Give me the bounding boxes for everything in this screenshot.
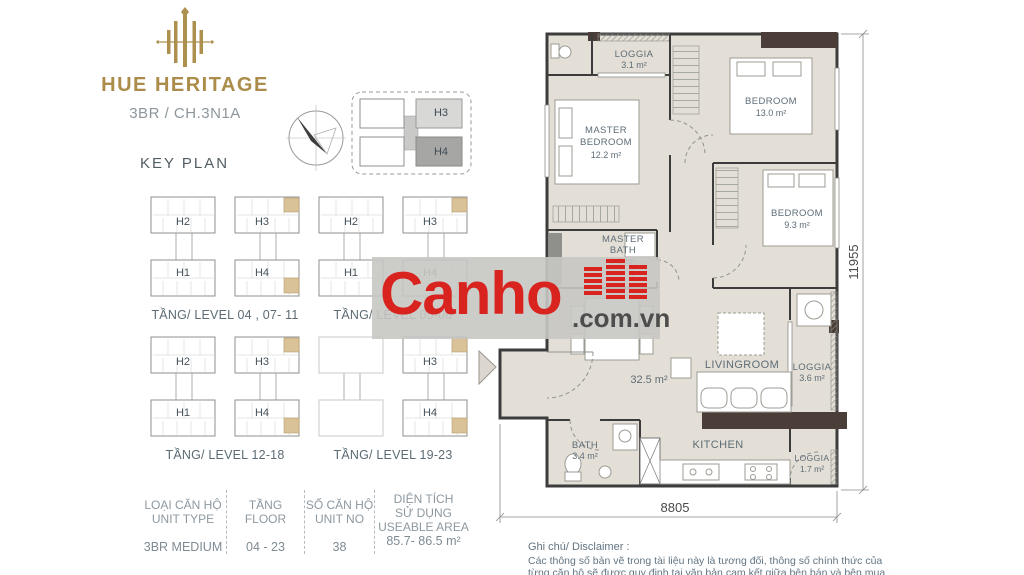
room-loggia-right-area: 3.6 m² <box>799 373 825 383</box>
unit-label: H3 <box>255 216 269 228</box>
room-bath-area: 3.4 m² <box>572 451 598 461</box>
central-area-label: 32.5 m² <box>630 374 668 386</box>
room-loggia-bottom: LOGGIA <box>795 453 830 463</box>
watermark: Canho .com.vn <box>372 257 660 339</box>
unit-label: H3 <box>423 356 437 368</box>
washer <box>797 294 831 326</box>
mini-keyplan: H3 H4 <box>350 90 474 178</box>
unit-label: H1 <box>344 267 358 279</box>
header-area-en: USEABLE AREA <box>378 520 469 534</box>
dim-width-label: 8805 <box>661 500 690 515</box>
header-area-vi1: DIỆN TÍCH <box>394 492 454 506</box>
unit-label: H4 <box>255 267 269 279</box>
room-master-bedroom-area: 12.2 m² <box>591 150 622 160</box>
room-kitchen: KITCHEN <box>692 439 743 451</box>
highlight-unit-h3 <box>284 338 299 352</box>
value-unit-type: 3BR MEDIUM <box>140 540 226 554</box>
unit-label: H2 <box>176 216 190 228</box>
highlight-unit-h3 <box>452 198 467 212</box>
room-bedroom-13-area: 13.0 m² <box>756 108 787 118</box>
value-floor: 04 - 23 <box>227 540 304 554</box>
unit-summary-table: LOẠI CĂN HỘ UNIT TYPE 3BR MEDIUM TẦNG FL… <box>140 490 472 554</box>
highlight-unit-h4 <box>452 418 467 433</box>
header-floor-en: FLOOR <box>245 512 286 526</box>
level-group-19-23: H3 H4 TẦNG/ LEVEL 19-23 <box>318 336 468 462</box>
unit-code: 3BR / CH.3N1A <box>85 105 285 122</box>
unit-label: H3 <box>423 216 437 228</box>
mini-h4-label: H4 <box>434 146 448 158</box>
watermark-domain: .com.vn <box>572 303 670 334</box>
unit-label: H2 <box>176 356 190 368</box>
highlight-unit-h3 <box>452 338 467 352</box>
highlight-unit-h3 <box>284 198 299 212</box>
unit-label: H4 <box>423 407 437 419</box>
room-livingroom: LIVINGROOM <box>705 359 779 371</box>
room-bedroom-9-area: 9.3 m² <box>784 220 810 230</box>
level-caption: TẦNG/ LEVEL 04 , 07- 11 <box>150 308 300 322</box>
room-loggia-right: LOGGIA <box>793 362 832 373</box>
room-bath: BATH <box>572 440 598 451</box>
header-unit-no-en: UNIT NO <box>315 512 364 526</box>
level-group-12-18: H2 H3 H1 H4 TẦNG/ LEVEL 12-18 <box>150 336 300 462</box>
level-group-04-07-11: H2 H3 H1 H4 TẦNG/ LEVEL 04 , 07- 11 <box>150 196 300 322</box>
keyplan-title: KEY PLAN <box>140 155 229 172</box>
level-caption: TẦNG/ LEVEL 12-18 <box>150 448 300 462</box>
mini-tower-nw <box>360 99 404 128</box>
room-bedroom-13: BEDROOM <box>745 96 797 107</box>
header-floor-vi: TẦNG <box>249 498 282 512</box>
unit-label: H1 <box>176 267 190 279</box>
room-master-bath: MASTER <box>602 234 644 245</box>
header-unit-type-vi: LOẠI CĂN HỘ <box>144 498 221 512</box>
room-loggia-top: LOGGIA <box>615 49 654 60</box>
mini-h3-label: H3 <box>434 107 448 119</box>
unit-label: H2 <box>344 216 358 228</box>
dim-height-label: 11955 <box>846 244 861 279</box>
value-unit-no: 38 <box>305 540 374 554</box>
room-master-bedroom: MASTER <box>585 125 627 136</box>
header-unit-no-vi: SỐ CĂN HỘ <box>306 498 373 512</box>
compass-icon <box>284 102 348 174</box>
unit-label: H4 <box>255 407 269 419</box>
highlight-unit-h4 <box>284 418 299 433</box>
header-unit-type-en: UNIT TYPE <box>152 512 214 526</box>
header-area-vi2: SỬ DỤNG <box>395 506 452 520</box>
highlight-unit-h4 <box>284 278 299 293</box>
room-loggia-top-area: 3.1 m² <box>621 60 647 70</box>
disclaimer-title: Ghi chú/ Disclaimer : <box>528 541 948 553</box>
floorplan-page: HUE HERITAGE 3BR / CH.3N1A KEY PLAN H3 H… <box>0 0 1024 575</box>
room-bedroom-9: BEDROOM <box>771 208 823 219</box>
hue-heritage-monogram-icon <box>153 6 217 72</box>
disclaimer-line-2: từng căn hộ sẽ được quy định tại văn bản… <box>528 567 948 575</box>
level-caption: TẦNG/ LEVEL 19-23 <box>318 448 468 462</box>
room-master-bedroom-2: BEDROOM <box>580 137 632 148</box>
watermark-brand: Canho <box>380 251 562 337</box>
unit-label: H1 <box>176 407 190 419</box>
value-area: 85.7- 86.5 m² <box>375 534 472 548</box>
brand-name: HUE HERITAGE <box>85 74 285 97</box>
room-master-bath-2: BATH <box>610 245 636 256</box>
mini-tower-sw <box>360 137 404 166</box>
disclaimer: Ghi chú/ Disclaimer : Các thông số bản v… <box>528 541 948 575</box>
unit-label: H3 <box>255 356 269 368</box>
rug <box>718 313 764 355</box>
room-loggia-bottom-area: 1.7 m² <box>800 464 824 474</box>
disclaimer-line-1: Các thông số bản vẽ trong tài liệu này l… <box>528 555 948 567</box>
watermark-building-icon <box>584 259 650 305</box>
